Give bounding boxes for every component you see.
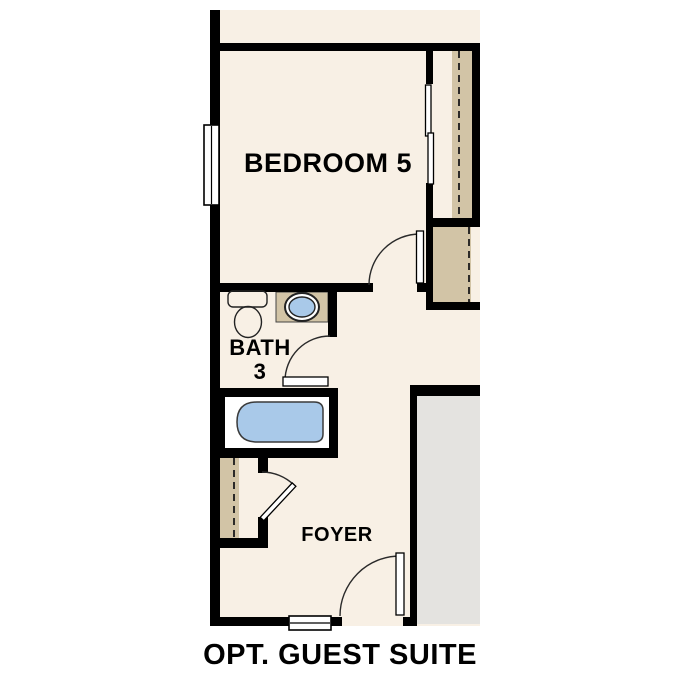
wall-segment bbox=[410, 385, 480, 396]
wall-segment bbox=[329, 388, 338, 458]
wall-segment bbox=[426, 51, 433, 84]
wall-segment bbox=[258, 455, 268, 473]
floor-plan-image: BEDROOM 5 BATH 3 FOYER OPT. GUEST SUITE bbox=[0, 0, 687, 687]
wall-segment bbox=[210, 538, 268, 548]
bedroom-window bbox=[204, 125, 219, 205]
wall-segment bbox=[426, 302, 480, 310]
wall-segment bbox=[210, 448, 338, 458]
floor-plan-page: BEDROOM 5 BATH 3 FOYER OPT. GUEST SUITE bbox=[0, 0, 687, 687]
wall-segment bbox=[426, 227, 433, 310]
wall-segment bbox=[426, 218, 480, 227]
bath-number: 3 bbox=[254, 359, 267, 384]
foyer-label: FOYER bbox=[301, 524, 372, 546]
wall-segment bbox=[210, 10, 220, 626]
door-panel bbox=[396, 553, 404, 615]
sink bbox=[285, 293, 319, 321]
wall-segment bbox=[472, 43, 480, 227]
sliding-door-panel bbox=[426, 85, 432, 136]
entry-window bbox=[289, 616, 331, 630]
wall-segment bbox=[426, 183, 433, 227]
bedroom-closet-shelf bbox=[452, 51, 472, 218]
door-panel bbox=[417, 231, 424, 283]
bath-label: BATH bbox=[229, 335, 290, 360]
exterior-area bbox=[417, 396, 480, 624]
sliding-door-panel bbox=[428, 133, 434, 184]
wall-segment bbox=[328, 292, 337, 337]
bedroom-label: BEDROOM 5 bbox=[244, 148, 412, 178]
wall-segment bbox=[220, 388, 338, 397]
coat-closet-shelf bbox=[220, 458, 239, 538]
wall-segment bbox=[410, 385, 417, 624]
bathtub bbox=[237, 402, 323, 442]
wall-segment bbox=[220, 388, 225, 458]
wall-segment bbox=[220, 43, 480, 51]
wall-segment bbox=[417, 283, 433, 292]
door-panel bbox=[283, 377, 328, 386]
hall-closet-shelf bbox=[433, 227, 471, 302]
sink-basin bbox=[289, 297, 315, 317]
caption-text: OPT. GUEST SUITE bbox=[203, 639, 477, 671]
